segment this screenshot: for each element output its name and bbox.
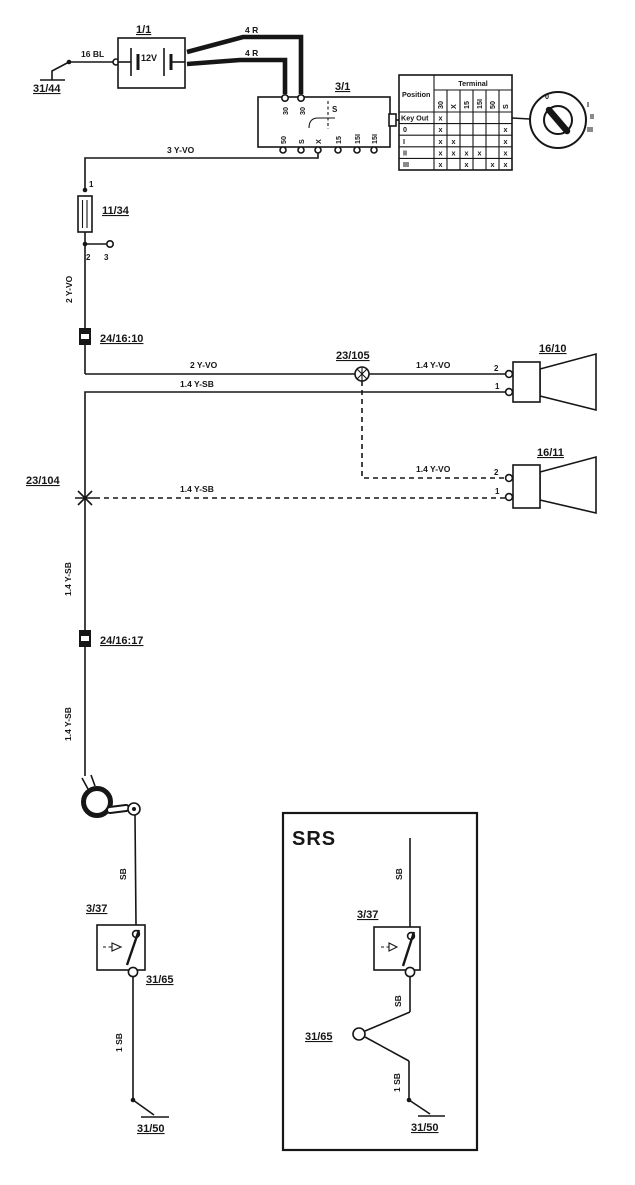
wire-3yvo-label: 3 Y-VO [167,145,195,155]
wire-1sb-left-label: 1 SB [114,1033,124,1052]
battery-id-label: 1/1 [136,24,151,36]
horn-lower-terminal-2-label: 2 [494,468,499,477]
table-col-s: S [501,104,510,109]
srs-wire-sb-bottom-label: SB [393,995,403,1007]
horn-lower-terminal-1-label: 1 [495,487,500,496]
terminal-15i-b-label: 15I [370,134,379,144]
srs-title: SRS [292,828,336,850]
horn-upper-terminal-2-label: 2 [494,364,499,373]
splice-23-105-label: 23/105 [336,350,370,362]
srs-switch-3-37-icon [374,927,420,977]
fuse-terminal-1-label: 1 [89,180,94,189]
clockspring-ring-icon [82,775,140,816]
splice-23-104-label: 23/104 [26,475,61,487]
table-col-30: 30 [436,101,445,109]
mark: x [504,137,508,146]
table-col-15: 15 [462,101,471,109]
mark: x [465,160,469,169]
mark: x [465,148,469,157]
terminal-30-left-label: 30 [281,107,290,115]
horn-16-11-icon [506,457,596,513]
wiring-diagram-page: 31/44 16 BL 1/1 12V 4 R 4 R 3/1 30 30 S [0,0,635,1185]
table-row-iii: III [403,160,409,169]
srs-connector-31-65-label: 31/65 [305,1031,333,1043]
connector-31-65-left-label: 31/65 [146,974,174,986]
horn-upper-terminal-1-label: 1 [495,382,500,391]
ground-31-50-left-icon [131,1098,169,1117]
table-row-i: I [403,137,405,146]
connector-24-16-10-label: 24/16:10 [100,333,143,345]
ignition-keylock-icon: 0 I II III [512,92,594,148]
terminal-15-label: 15 [334,136,343,144]
keylock-pos-ii: II [590,112,594,121]
table-col-x: X [449,104,458,109]
mark: x [504,125,508,134]
table-row-keyout: Key Out [401,114,429,123]
battery-voltage-label: 12V [141,53,157,63]
splice-23-105-icon [355,367,369,381]
wire-14ysb-dashed-label: 1.4 Y-SB [180,484,214,494]
table-position-header: Position [402,90,430,99]
ignition-id-label: 3/1 [335,81,350,93]
terminal-50-label: 50 [279,136,288,144]
ground-31-44: 31/44 16 BL [33,49,119,95]
wire-14ysb-lower-label: 1.4 Y-SB [63,707,73,741]
connector-24-16-17-label: 24/16:17 [100,635,143,647]
mark: x [439,137,443,146]
battery-box-icon [118,38,185,88]
wire-14ysb-solid-label: 1.4 Y-SB [180,379,214,389]
mark: x [439,114,443,123]
srs-box: SRS SB 3/37 SB 31/65 1 SB 31/50 [283,813,477,1150]
horn-16-11-label: 16/11 [537,447,564,459]
ground-31-50-left-label: 31/50 [137,1123,165,1135]
wire-14yvo-dashed-label: 1.4 Y-VO [416,464,451,474]
battery-1-1: 1/1 12V [118,24,185,88]
fuse-icon [78,196,92,232]
ignition-switch-3-1: 3/1 30 30 S 50 S X 15 15I 15I [258,81,399,153]
ignition-position-table: Position Terminal 30 X 15 15I 50 S Key O… [399,75,512,170]
mark: x [491,160,495,169]
terminal-30-right-label: 30 [298,107,307,115]
table-row-ii: II [403,148,407,157]
wire-4r-upper-label: 4 R [245,25,258,35]
switch-3-37-left-label: 3/37 [86,903,107,915]
wire-4r-lower-label: 4 R [245,48,258,58]
horn-switch-chain: 1.4 Y-SB 24/16:17 1.4 Y-SB SB 3/37 31/6 [63,562,174,1135]
table-terminal-header: Terminal [458,79,487,88]
table-row-0: 0 [403,125,407,134]
srs-ground-31-50-label: 31/50 [411,1122,439,1134]
keylock-pos-iii: III [587,125,593,134]
mark: x [478,148,482,157]
table-col-50: 50 [488,101,497,109]
terminal-s-label: S [332,105,338,114]
fuse-branch: 3 Y-VO 1 11/34 2 3 2 Y-VO 24/16:10 [64,145,318,374]
fuse-terminal-3-label: 3 [104,253,109,262]
srs-connector-31-65-icon [353,1028,365,1040]
wire-16bl-label: 16 BL [81,49,104,59]
wire-sb-left-label: SB [118,868,128,880]
fuse-terminal-2-label: 2 [86,253,91,262]
horn-circuit: 2 Y-VO 1.4 Y-VO 2 23/105 1.4 Y-SB 1 16/1… [26,343,596,630]
mark: x [439,148,443,157]
terminal-s2-label: S [297,139,306,144]
mark: x [452,137,456,146]
mark: x [439,125,443,134]
horn-16-10-icon [506,354,596,410]
mark: x [504,160,508,169]
mark: x [504,148,508,157]
switch-3-37-left-icon [97,925,145,977]
wire-2yvo-vertical-label: 2 Y-VO [64,275,74,303]
terminal-x-label: X [314,139,323,144]
wire-2yvo-label: 2 Y-VO [190,360,218,370]
srs-wire-sb-top-label: SB [394,868,404,880]
ground-31-44-label: 31/44 [33,83,61,95]
mark: x [452,148,456,157]
wire-14ysb-upper-label: 1.4 Y-SB [63,562,73,596]
keylock-pos-i: I [587,100,589,109]
horn-16-10-label: 16/10 [539,343,567,355]
srs-switch-3-37-label: 3/37 [357,909,378,921]
mark: x [439,160,443,169]
fuse-id-label: 11/34 [102,205,130,217]
table-col-15i: 15I [475,99,484,109]
keylock-pos-0: 0 [545,92,549,101]
wiring-diagram-canvas: 31/44 16 BL 1/1 12V 4 R 4 R 3/1 30 30 S [0,0,635,1185]
battery-cables: 4 R 4 R [187,25,301,94]
terminal-15i-a-label: 15I [353,134,362,144]
wire-14yvo-solid-label: 1.4 Y-VO [416,360,451,370]
srs-ground-31-50-icon [407,1098,445,1116]
srs-wire-1sb-label: 1 SB [392,1073,402,1092]
